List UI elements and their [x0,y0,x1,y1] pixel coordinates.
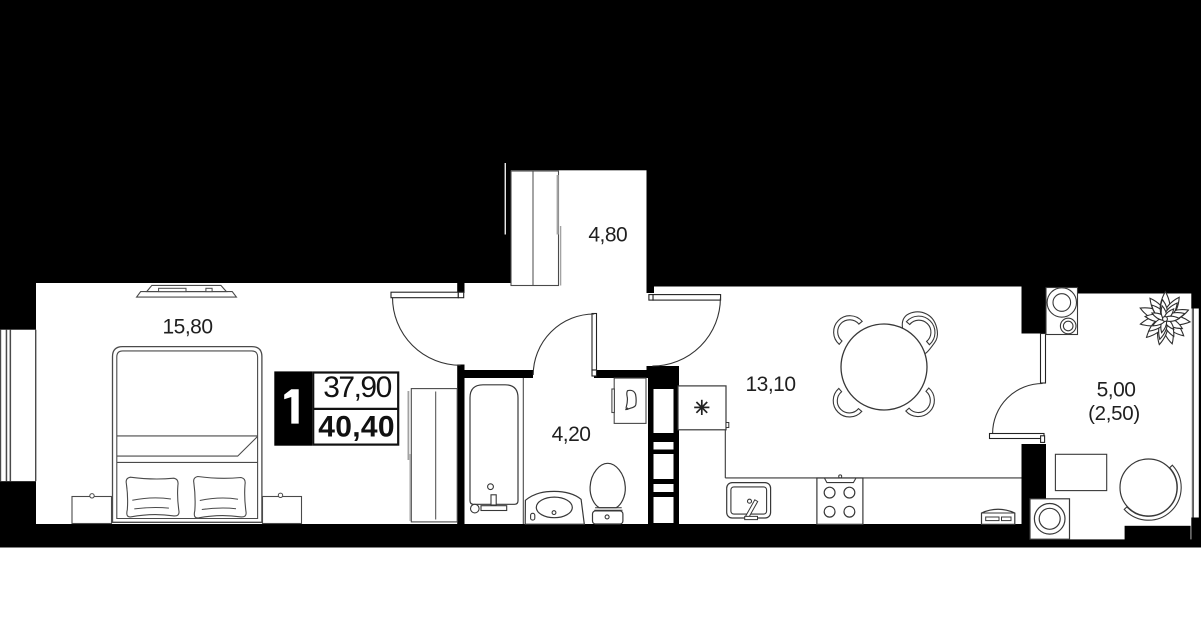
svg-text:4,80: 4,80 [588,223,627,246]
svg-text:40,40: 40,40 [318,411,395,444]
svg-text:4,20: 4,20 [552,423,591,446]
svg-text:5,00: 5,00 [1097,378,1136,401]
svg-text:37,90: 37,90 [323,371,391,404]
svg-text:15,80: 15,80 [162,315,212,338]
svg-text:13,10: 13,10 [745,373,795,396]
svg-text:(2,50): (2,50) [1088,402,1140,425]
